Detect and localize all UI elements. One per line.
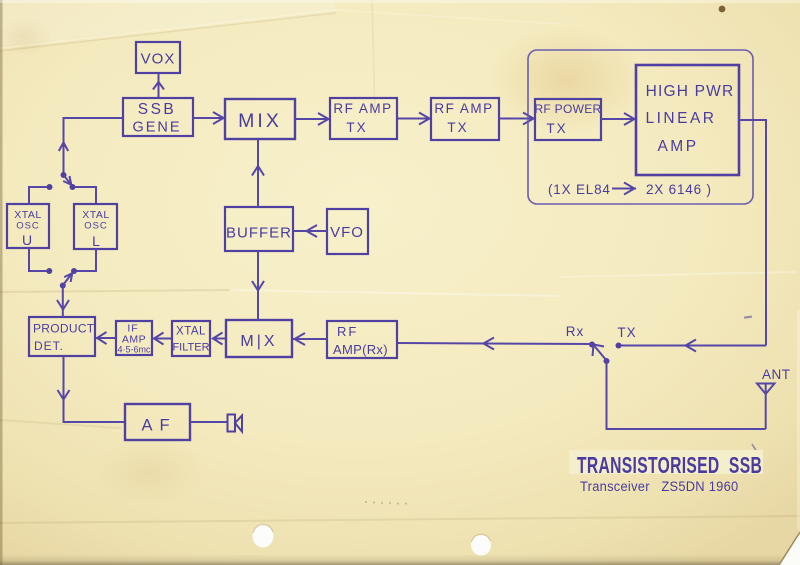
- svg-text:SSB: SSB: [138, 101, 177, 118]
- svg-text:HIGH PWR: HIGH PWR: [646, 83, 735, 100]
- svg-text:OSC: OSC: [84, 221, 108, 232]
- svg-text:TX: TX: [346, 120, 367, 135]
- svg-text:M|X: M|X: [240, 333, 277, 350]
- svg-text:ANT: ANT: [762, 367, 791, 382]
- svg-text:DET.: DET.: [34, 339, 64, 353]
- svg-text:TX: TX: [617, 325, 636, 340]
- svg-text:VFO: VFO: [330, 224, 364, 241]
- svg-text:U: U: [22, 232, 32, 248]
- svg-text:VOX: VOX: [141, 51, 176, 68]
- svg-text:AMP(Rx): AMP(Rx): [333, 342, 388, 357]
- svg-text:XTAL: XTAL: [82, 209, 109, 221]
- svg-text:Rx: Rx: [566, 324, 585, 339]
- svg-text:MIX: MIX: [238, 110, 282, 132]
- svg-text:AMP: AMP: [657, 138, 698, 155]
- svg-text:LINEAR: LINEAR: [646, 110, 717, 127]
- svg-text:TX: TX: [447, 120, 468, 135]
- svg-text:BUFFER: BUFFER: [226, 225, 292, 242]
- svg-text:PRODUCT: PRODUCT: [33, 322, 95, 336]
- svg-text:XTAL: XTAL: [14, 209, 41, 221]
- svg-text:RF: RF: [337, 324, 358, 339]
- svg-text:FILTER: FILTER: [172, 342, 209, 354]
- svg-text:L: L: [92, 233, 100, 249]
- svg-text:RF AMP: RF AMP: [434, 101, 493, 116]
- svg-text:(1X EL84: (1X EL84: [548, 182, 611, 197]
- svg-text:4·5-6mc: 4·5-6mc: [117, 345, 151, 355]
- svg-text:TRANSISTORISED SSB: TRANSISTORISED SSB: [577, 453, 762, 479]
- svg-text:GENE: GENE: [132, 120, 181, 136]
- svg-text:OSC: OSC: [16, 221, 40, 232]
- svg-text:XTAL: XTAL: [176, 326, 206, 338]
- svg-text:2X 6146 ): 2X 6146 ): [646, 182, 712, 197]
- svg-text:TX: TX: [546, 121, 567, 136]
- svg-text:Transceiver ZS5DN 1960: Transceiver ZS5DN 1960: [580, 479, 738, 495]
- svg-text:RF AMP: RF AMP: [333, 101, 392, 116]
- svg-text:RF POWER: RF POWER: [534, 102, 601, 116]
- svg-text:AF: AF: [141, 417, 176, 435]
